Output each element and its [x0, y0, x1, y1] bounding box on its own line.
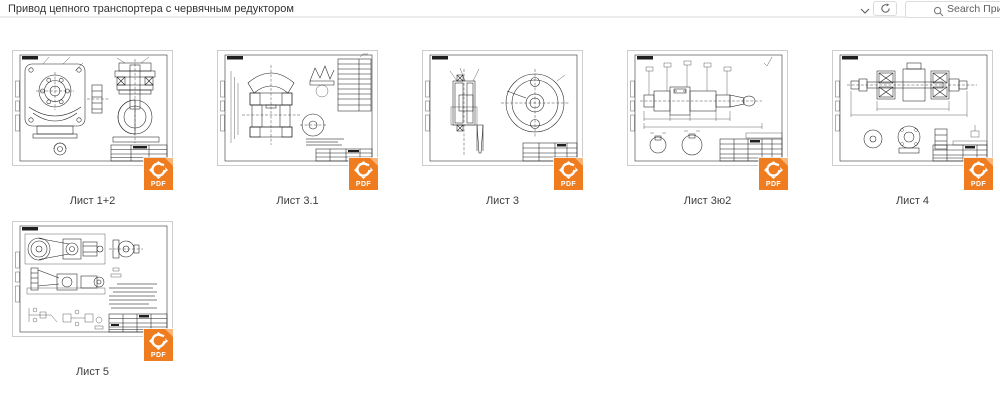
drawing-thumbnail-shaft	[627, 50, 788, 166]
file-card: PDF Лист 3	[422, 50, 583, 208]
file-tile-list-3-1[interactable]: PDF	[217, 50, 378, 190]
folder-title: Привод цепного транспортера с червячным …	[8, 3, 294, 15]
pdf-badge: PDF	[554, 158, 583, 190]
file-card: PDF Лист 3ю2	[627, 50, 788, 208]
file-name: Лист 3.1	[217, 194, 378, 208]
refresh-button[interactable]	[873, 1, 897, 16]
file-tile-list-4[interactable]: PDF	[832, 50, 993, 190]
file-tile-list-5[interactable]: PDF	[12, 221, 173, 361]
pdf-badge: PDF	[144, 329, 173, 361]
file-name: Лист 3ю2	[627, 194, 788, 208]
chevron-down-icon[interactable]	[858, 3, 872, 15]
pdf-badge-label: PDF	[554, 180, 583, 189]
header-bar: Привод цепного транспортера с червячным …	[0, 0, 1000, 18]
file-name: Лист 1+2	[12, 194, 173, 208]
file-card: PDF Лист 5	[12, 221, 173, 379]
drawing-thumbnail-worm-wheel	[217, 50, 378, 166]
drawing-thumbnail-shaft-assembly	[832, 50, 993, 166]
drawing-thumbnail-pulley	[422, 50, 583, 166]
search-icon	[933, 4, 944, 22]
file-row-2: PDF Лист 5	[12, 221, 1000, 379]
file-card: PDF Лист 1+2	[12, 50, 173, 208]
pdf-badge-label: PDF	[759, 180, 788, 189]
pdf-badge: PDF	[144, 158, 173, 190]
file-tile-list-1-2[interactable]: PDF	[12, 50, 173, 190]
refresh-icon	[880, 3, 891, 14]
pdf-badge-label: PDF	[144, 180, 173, 189]
search-box[interactable]	[905, 1, 1000, 18]
pdf-badge-label: PDF	[144, 351, 173, 360]
pdf-badge: PDF	[964, 158, 993, 190]
drawing-thumbnail-general-arrangement	[12, 221, 173, 337]
drawing-thumbnail-gearbox-assembly	[12, 50, 173, 166]
pdf-badge-label: PDF	[349, 180, 378, 189]
file-grid: PDF Лист 1+2	[0, 18, 1000, 379]
file-card: PDF Лист 3.1	[217, 50, 378, 208]
file-name: Лист 5	[12, 365, 173, 379]
file-row-1: PDF Лист 1+2	[12, 50, 1000, 208]
search-input[interactable]	[947, 2, 1000, 15]
pdf-badge: PDF	[349, 158, 378, 190]
pdf-badge-label: PDF	[964, 180, 993, 189]
pdf-badge: PDF	[759, 158, 788, 190]
file-name: Лист 4	[832, 194, 993, 208]
file-tile-list-3[interactable]: PDF	[422, 50, 583, 190]
file-card: PDF Лист 4	[832, 50, 993, 208]
file-tile-list-3-2[interactable]: PDF	[627, 50, 788, 190]
file-name: Лист 3	[422, 194, 583, 208]
